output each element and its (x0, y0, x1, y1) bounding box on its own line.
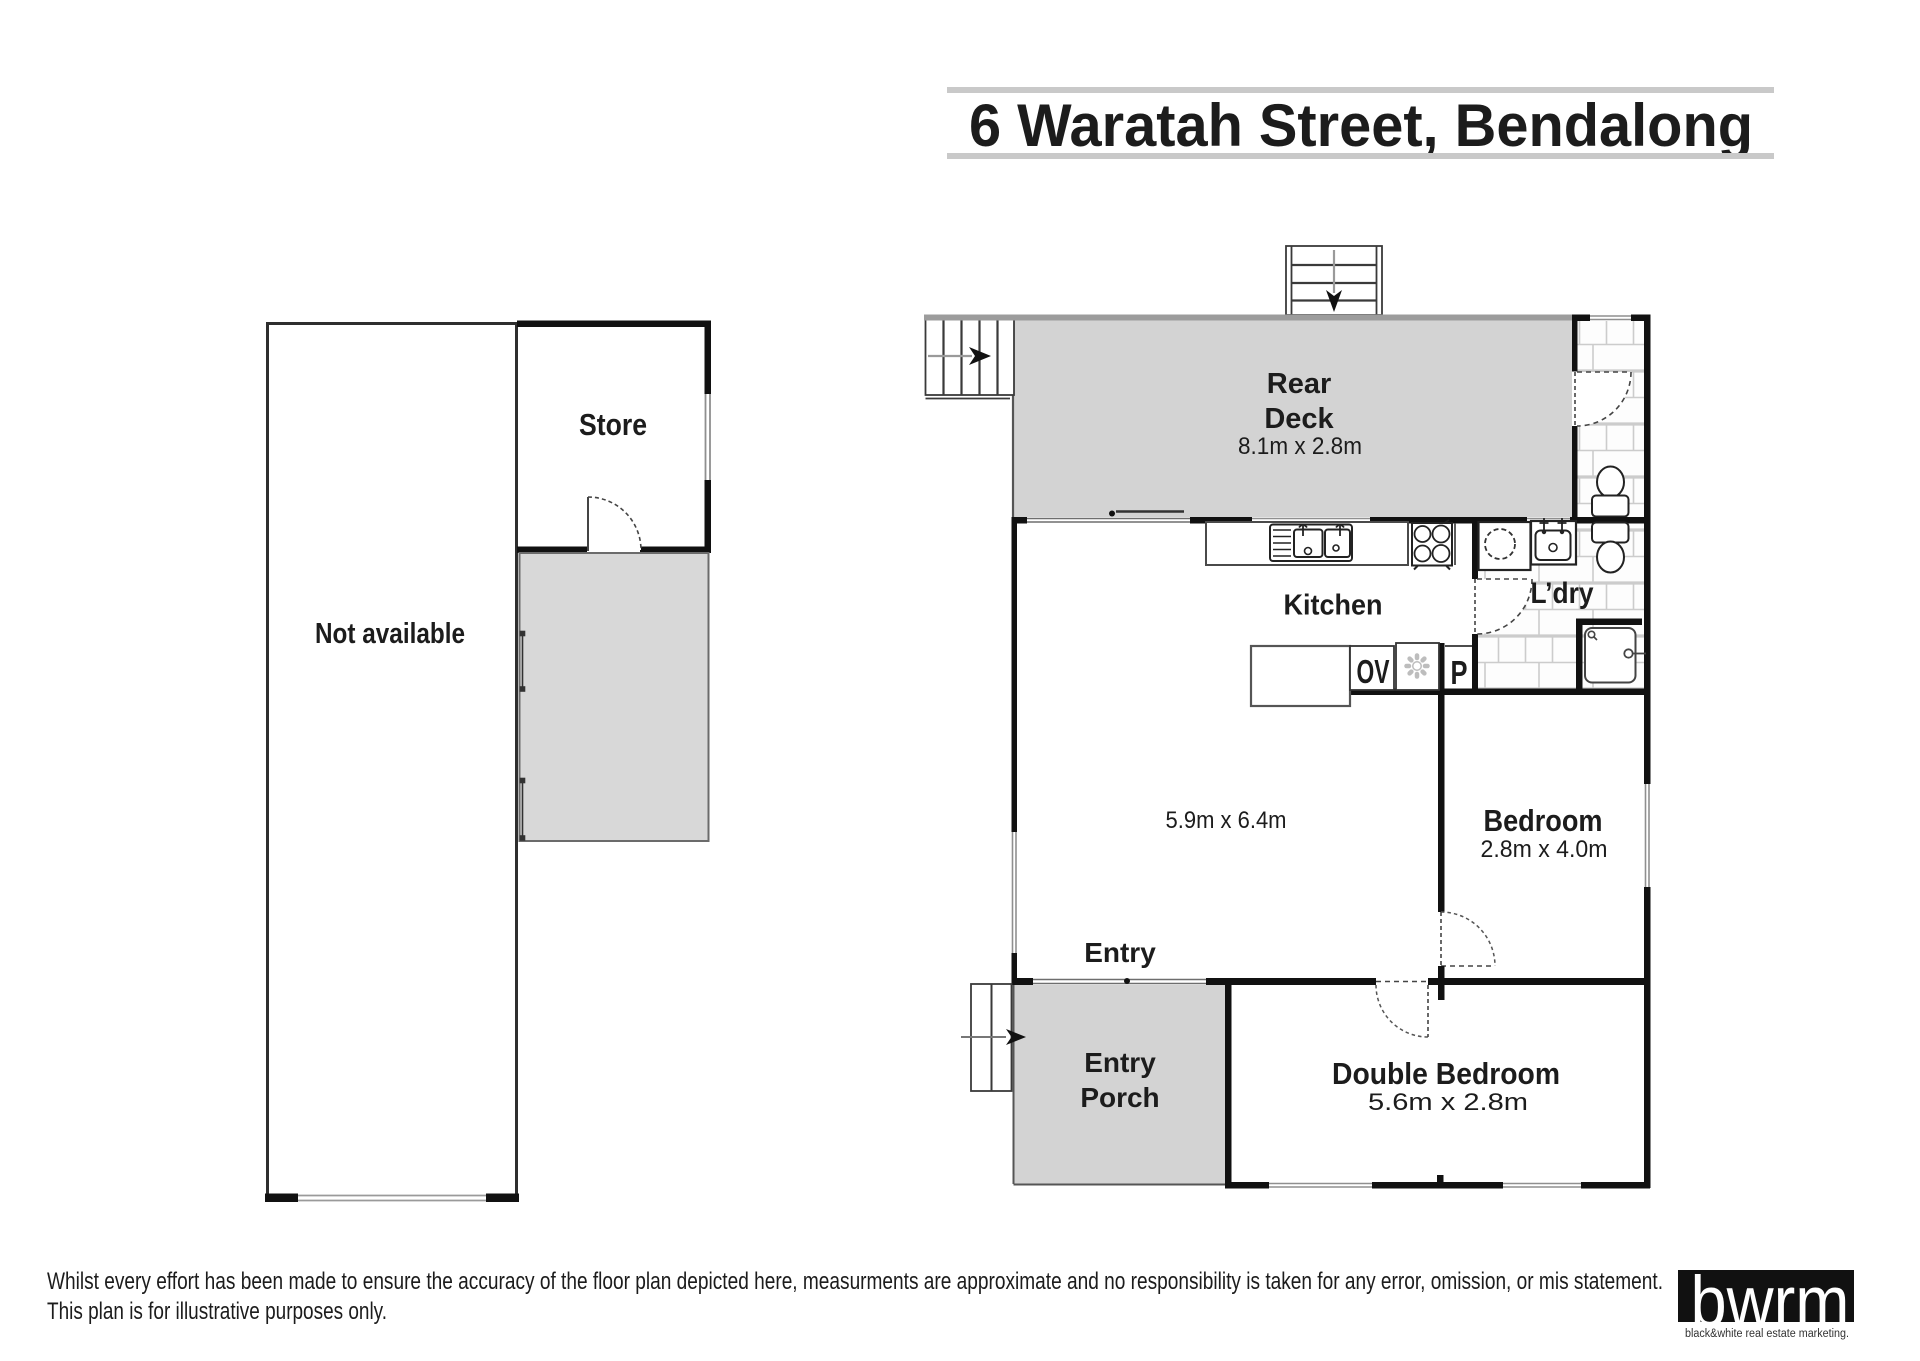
svg-text:This plan is for illustrative: This plan is for illustrative purposes o… (47, 1298, 387, 1325)
svg-text:Bedroom: Bedroom (1484, 803, 1603, 838)
svg-text:Rear: Rear (1267, 368, 1332, 400)
svg-text:Porch: Porch (1080, 1082, 1159, 1113)
svg-text:5.6m x 2.8m: 5.6m x 2.8m (1368, 1089, 1528, 1116)
svg-text:Entry: Entry (1084, 1047, 1156, 1078)
svg-text:Deck: Deck (1264, 403, 1334, 435)
svg-text:Entry: Entry (1084, 937, 1156, 968)
svg-text:Double Bedroom: Double Bedroom (1332, 1056, 1560, 1091)
svg-text:8.1m x 2.8m: 8.1m x 2.8m (1238, 433, 1362, 460)
svg-text:Not available: Not available (315, 618, 465, 650)
svg-text:L’dry: L’dry (1531, 577, 1594, 610)
svg-text:black&white real estate market: black&white real estate marketing. (1685, 1328, 1849, 1340)
svg-text:Store: Store (579, 407, 647, 442)
svg-text:OV: OV (1357, 653, 1390, 690)
svg-text:2.8m x 4.0m: 2.8m x 4.0m (1481, 836, 1608, 863)
svg-text:Kitchen: Kitchen (1284, 590, 1383, 622)
svg-text:5.9m x 6.4m: 5.9m x 6.4m (1166, 807, 1287, 834)
svg-text:6 Waratah Street, Bendalong: 6 Waratah Street, Bendalong (969, 92, 1753, 159)
svg-text:P: P (1451, 654, 1468, 691)
svg-text:Whilst every effort has been m: Whilst every effort has been made to ens… (47, 1268, 1663, 1295)
